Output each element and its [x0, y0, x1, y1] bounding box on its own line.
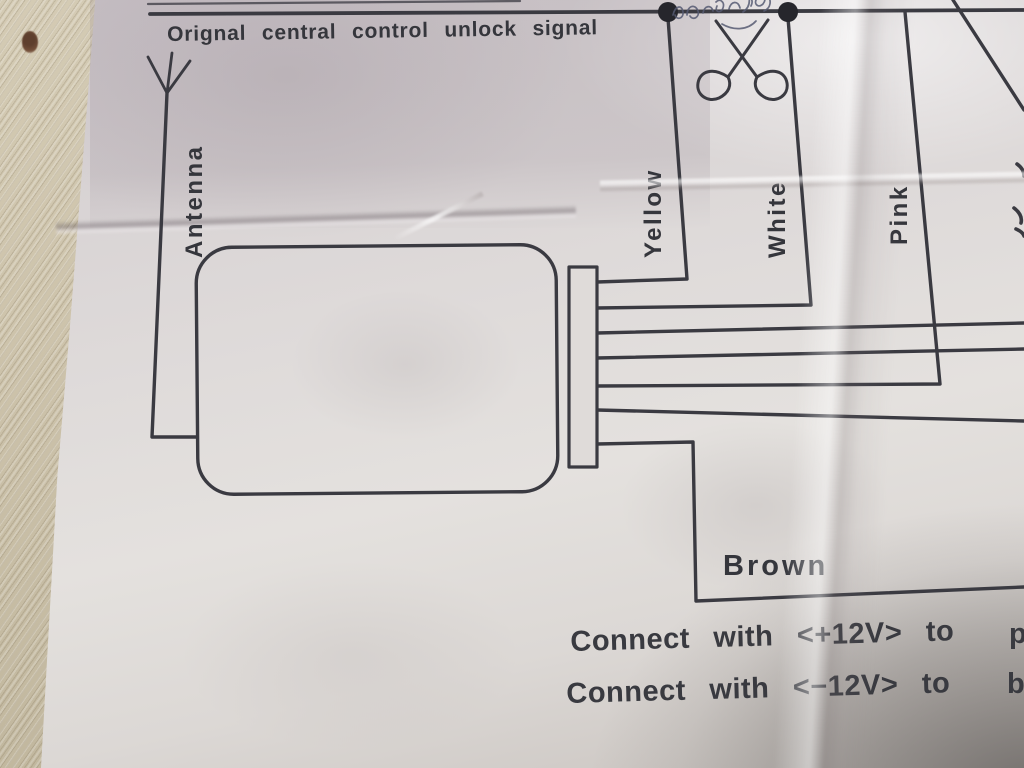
scissors-cut-icon: [698, 20, 787, 100]
instruction-line-2-clipped-letter: b: [1007, 670, 1024, 699]
wire-connector-block: [569, 267, 597, 467]
pin3-wire: [597, 323, 1024, 333]
photo-of-wiring-diagram: Orignal central control unlock signal An…: [0, 0, 1024, 768]
scissors-handle: [755, 71, 787, 99]
wire-label-brown: Brown: [723, 552, 828, 581]
schematic-ink-layer: [0, 0, 1024, 768]
control-module-box: [196, 244, 558, 494]
wire-label-white: White: [766, 180, 790, 258]
wire-label-pink: Pink: [888, 184, 912, 245]
original-signal-wire: [150, 10, 1024, 14]
pen-scribble: [673, 0, 770, 29]
white-wire: [597, 18, 811, 308]
junction-dot: [778, 2, 798, 22]
pin4-wire: [597, 349, 1024, 358]
clipped-label-fragments: [1014, 164, 1024, 236]
paper-top-edge-line: [148, 1, 520, 4]
wire-label-yellow: Yellow: [642, 168, 666, 258]
scissors-handle: [698, 71, 730, 99]
junction-dot: [658, 2, 678, 22]
edge-diagonal-wire: [953, 0, 1024, 110]
antenna-prongs: [148, 53, 190, 93]
pin6-wire: [597, 410, 1024, 421]
instruction-line-1-clipped-letter: p: [1009, 620, 1024, 649]
wire-label-antenna: Antenna: [183, 145, 207, 259]
